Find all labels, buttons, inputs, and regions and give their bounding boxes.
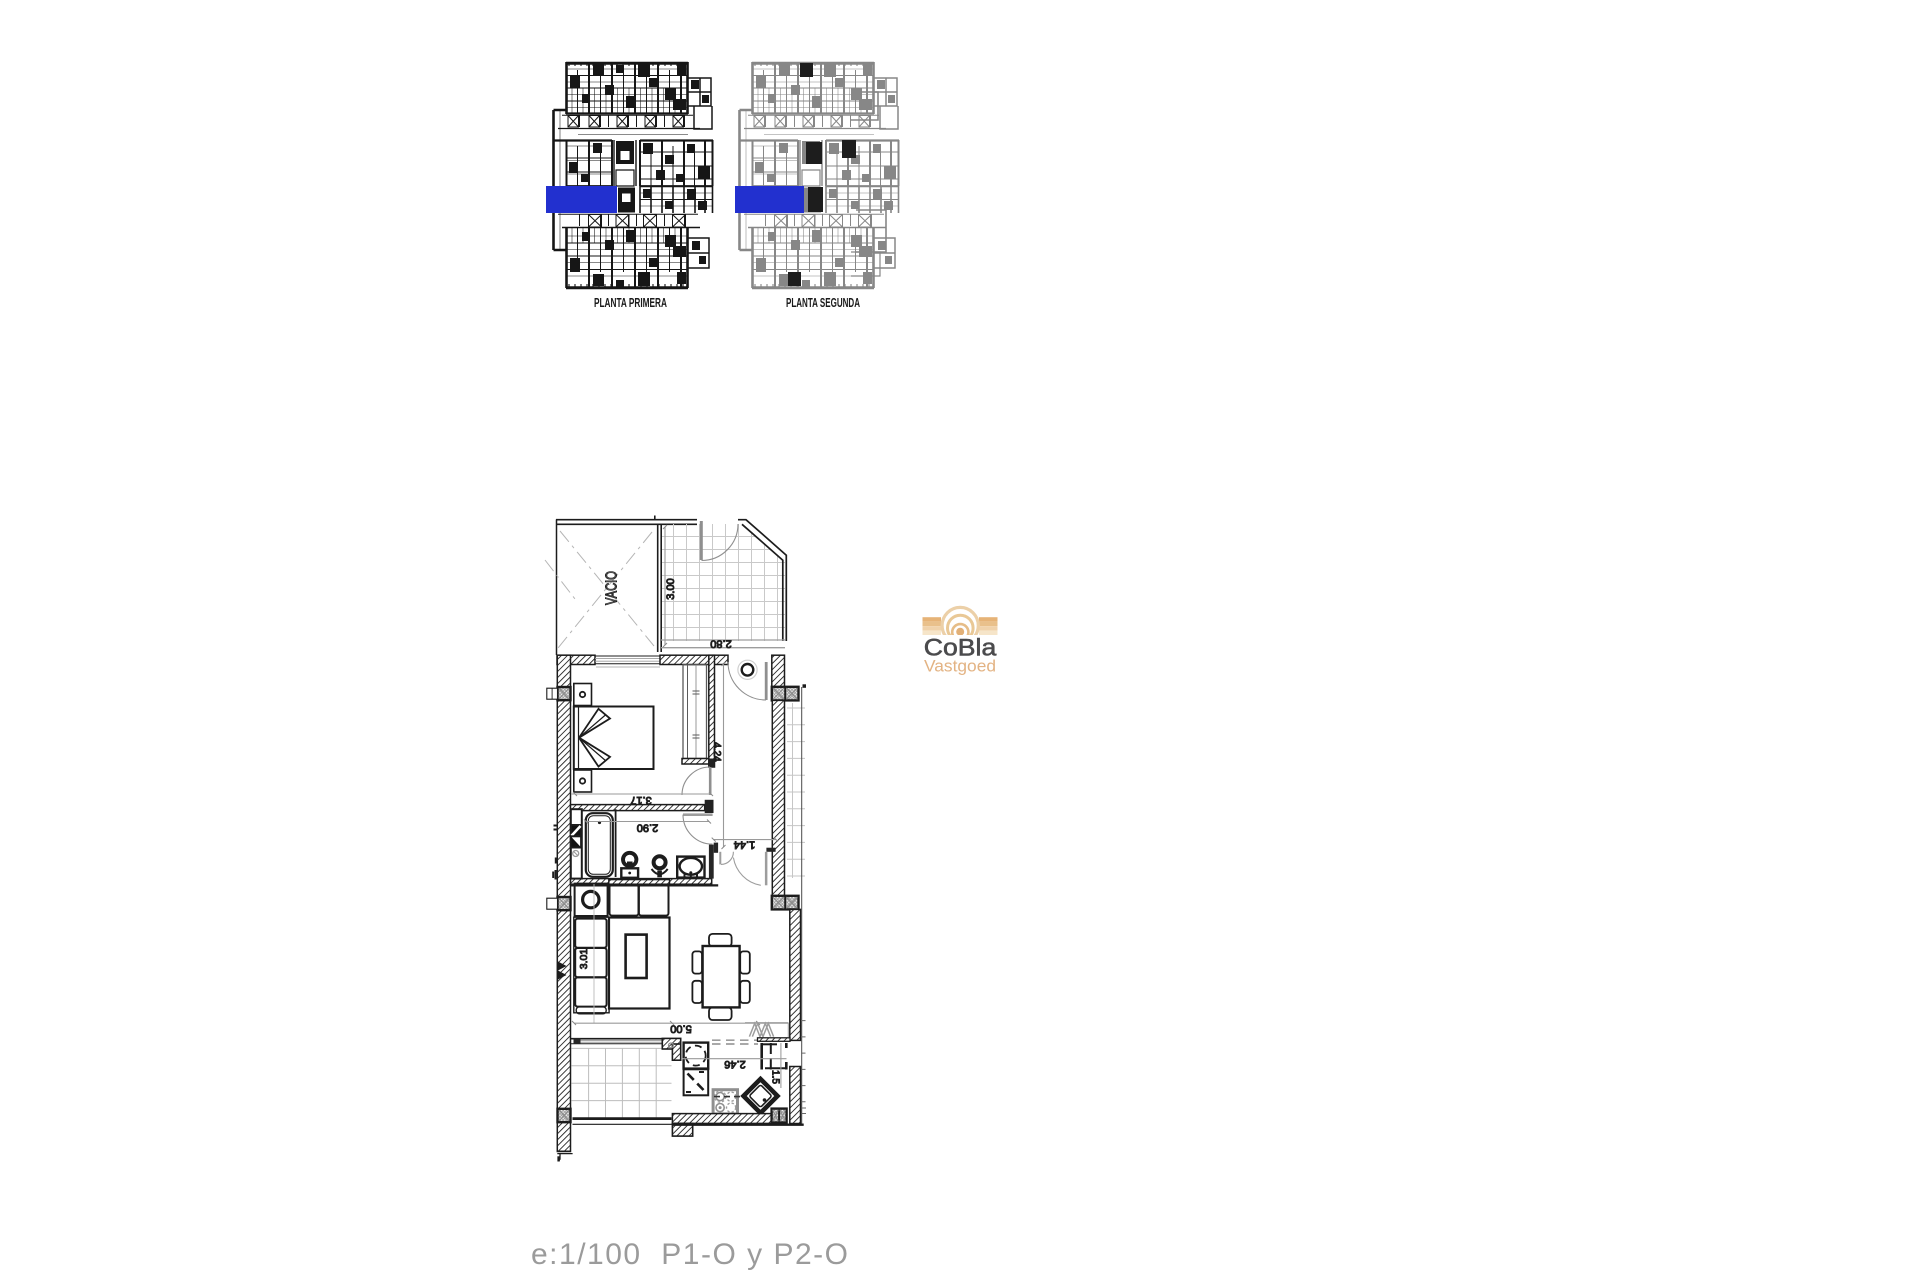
svg-text:PLANTA SEGUNDA: PLANTA SEGUNDA [786,296,860,310]
svg-text:1.5: 1.5 [770,1070,781,1084]
svg-text:2.80: 2.80 [710,637,731,649]
svg-text:3.17: 3.17 [630,794,651,806]
svg-text:4.24: 4.24 [711,742,722,762]
svg-text:3.01: 3.01 [578,949,590,970]
svg-text:5.00: 5.00 [670,1023,691,1035]
svg-text:Vastgoed: Vastgoed [924,656,996,675]
svg-text:2.46: 2.46 [724,1058,745,1070]
svg-text:VACIO: VACIO [604,571,621,605]
svg-text:e:1/100 P1-O y P2-O: e:1/100 P1-O y P2-O [531,1238,849,1271]
svg-text:3.00: 3.00 [665,578,677,599]
svg-text:2.90: 2.90 [637,822,658,834]
svg-text:PLANTA PRIMERA: PLANTA PRIMERA [594,296,667,310]
svg-text:1.44: 1.44 [734,839,755,851]
